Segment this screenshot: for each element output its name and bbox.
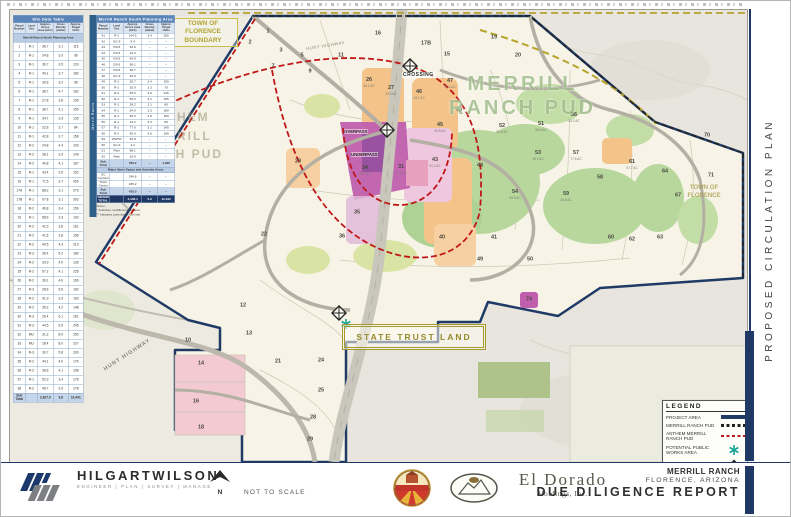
parcel-label: 58 bbox=[597, 175, 603, 181]
table-row: 11R-142.83.7158 bbox=[13, 132, 83, 141]
legend-item-merrill-pud: Merrill Ranch PUD bbox=[666, 423, 748, 429]
parcel-label: 20 bbox=[515, 53, 521, 59]
titleblock-accent-bar bbox=[745, 466, 754, 514]
parcel-label: 17B bbox=[421, 41, 431, 47]
table-sidebar-label: Merrill Ranch bbox=[91, 102, 95, 129]
parcel-label: 22 bbox=[261, 232, 267, 238]
report-title: DUE DILIGENCE REPORT bbox=[537, 485, 741, 499]
legend: LEGEND Project Area Merrill Ranch PUD An… bbox=[662, 400, 748, 463]
parcel-label: 48 bbox=[456, 108, 462, 114]
parcel-label: 6157.7 AC bbox=[626, 160, 637, 170]
title-block-bar: HILGARTWILSON ENGINEER | PLAN | SURVEY |… bbox=[1, 462, 791, 517]
firm-name: HILGARTWILSON bbox=[77, 469, 277, 482]
legend-item-public-works: Potential Public Works Area bbox=[666, 444, 748, 456]
table-row: 9R-134.73.9135 bbox=[13, 114, 83, 123]
table-row: 18R-246.83.4159 bbox=[13, 204, 83, 213]
table-row: 16R-171.53.7265 bbox=[13, 177, 83, 186]
right-accent-bar bbox=[745, 331, 754, 461]
parcel-label: 7 bbox=[271, 64, 274, 70]
table-row: 28R-241.93.9163 bbox=[13, 294, 83, 303]
table-row: 20R-242.33.8161 bbox=[13, 222, 83, 231]
parcel-label: 70 bbox=[704, 133, 710, 139]
parcel-label: 5777.6 AC bbox=[570, 151, 581, 161]
parcel-label: 5454.9 AC bbox=[509, 190, 520, 200]
right-rail: PROPOSED CIRCULATION PLAN bbox=[756, 1, 791, 461]
project-area-swatch bbox=[721, 415, 747, 419]
column-header: Parcel Number bbox=[13, 23, 25, 33]
parcel-label: 2728.6 AC bbox=[385, 86, 396, 96]
parcel-label: 44 bbox=[477, 163, 483, 169]
anthem-pud-swatch bbox=[721, 435, 747, 438]
table-row: Sub Total435.0---- bbox=[97, 188, 175, 196]
parcel-label: 3144.5 AC bbox=[395, 165, 406, 175]
parcel-label: 5250.6 AC bbox=[496, 124, 507, 134]
table-sidebar: Merrill Ranch bbox=[90, 15, 97, 217]
legend-item-project-area: Project Area bbox=[666, 415, 748, 421]
parcel-label: 5328.2 AC bbox=[532, 151, 543, 161]
north-arrow-icon bbox=[207, 469, 233, 483]
column-header: Land Use bbox=[25, 23, 37, 33]
firm-tagline: ENGINEER | PLAN | SURVEY | MANAGE bbox=[77, 484, 277, 489]
table-row: 7R-127.83.8106 bbox=[13, 96, 83, 105]
asterisk-icon bbox=[728, 444, 740, 456]
parcel-label: 71 bbox=[708, 173, 714, 179]
parcel-label: 14 bbox=[198, 361, 204, 367]
parcel-label: 36 bbox=[339, 234, 345, 240]
column-header: Approx. Gross Area (AC±) bbox=[37, 23, 53, 33]
parcel-label: 63 bbox=[657, 235, 663, 241]
table-notes: Notes:* Indicates modified parcel area**… bbox=[97, 205, 175, 218]
table-title: Merrill Ranch South Planning Area bbox=[97, 15, 175, 23]
parcel-label: 15 bbox=[444, 52, 450, 58]
column-header: Approx. Target Units bbox=[68, 23, 83, 33]
parcel-label: 2 bbox=[248, 40, 251, 46]
plan-sheet: 12357911151617B19202636.1 AC2728.6 AC464… bbox=[0, 0, 791, 517]
table-title: Site Data Table bbox=[13, 15, 83, 23]
table-row: 31R-344.55.5245 bbox=[13, 321, 83, 330]
parcel-label: 3 bbox=[279, 48, 282, 54]
table-row: 36R-238.64.1158 bbox=[13, 366, 83, 375]
table-row: 1R-136.73.1115 bbox=[13, 42, 83, 51]
table-row: 32MU31.28.0250 bbox=[13, 330, 83, 339]
parcel-label: 4757.6 AC bbox=[444, 79, 455, 89]
parcel-label: 74 bbox=[526, 297, 532, 303]
firm-block: HILGARTWILSON ENGINEER | PLAN | SURVEY |… bbox=[77, 469, 277, 491]
parcel-label: 16 bbox=[375, 31, 381, 37]
table-row: 33MU28.48.0227 bbox=[13, 339, 83, 348]
table-row: 29R-235.24.2148 bbox=[13, 303, 83, 312]
hilgartwilson-logo bbox=[15, 471, 71, 505]
table-row: 10R-122.83.784 bbox=[13, 123, 83, 132]
town-of-florence-seal bbox=[393, 469, 431, 507]
table-row: 23R-336.45.2189 bbox=[13, 249, 83, 258]
parcel-label: 13 bbox=[246, 331, 252, 337]
right-accent-line bbox=[749, 9, 751, 331]
table-row: 26R-236.14.6166 bbox=[13, 276, 83, 285]
parcel-label: 28 bbox=[310, 415, 316, 421]
parcel-label: 11 bbox=[338, 53, 344, 59]
parcel-label: 5940.8 AC bbox=[560, 192, 571, 202]
parcel-label: 18 bbox=[198, 425, 204, 431]
table-row: Town Center185.2---- bbox=[97, 180, 175, 188]
parcel-label: 5155.6 AC bbox=[535, 122, 546, 132]
project-name: MERRILL RANCH bbox=[537, 467, 741, 476]
parcel-label: 35 bbox=[354, 210, 360, 216]
parcel-label: 67 bbox=[675, 193, 681, 199]
table-column-headers: Parcel NumberLand UseApprox. Gross Area … bbox=[13, 23, 83, 33]
table-row: 38R-245.73.9178 bbox=[13, 384, 83, 393]
table-row: 17BR-197.83.1303 bbox=[13, 195, 83, 204]
column-header: Gross Density (du/ac) bbox=[142, 23, 158, 33]
table-row: 22R-249.54.3213 bbox=[13, 240, 83, 249]
site-data-tables: Site Data Table Parcel NumberLand UseApp… bbox=[13, 15, 189, 402]
parcel-label: 49 bbox=[477, 257, 483, 263]
parcel-label: 3439.7 AC bbox=[359, 166, 370, 176]
eldorado-logo bbox=[449, 472, 499, 504]
site-data-table-south: Merrill Ranch South Planning Area Parcel… bbox=[97, 15, 175, 203]
table-section: Merrill Ranch North Planning Area bbox=[13, 33, 83, 42]
table-row: 37R-152.33.4178 bbox=[13, 375, 83, 384]
table-row: 25R-257.24.1235 bbox=[13, 267, 83, 276]
merrill-pud-swatch bbox=[721, 424, 747, 427]
table-row: 34R-339.75.8230 bbox=[13, 348, 83, 357]
table-row: 14R-240.84.1167 bbox=[13, 159, 83, 168]
parcel-label: 23 bbox=[295, 159, 301, 165]
parcel-label: 25 bbox=[318, 388, 324, 394]
site-data-table-north: Site Data Table Parcel NumberLand UseApp… bbox=[13, 15, 84, 402]
table-row: 35R-244.14.0176 bbox=[13, 357, 83, 366]
parcel-label: 4351.2 AC bbox=[429, 158, 440, 168]
table-row: 19R-158.63.3193 bbox=[13, 213, 83, 222]
table-row: 3R-136.73.5129 bbox=[13, 60, 83, 69]
project-location: FLORENCE, ARIZONA bbox=[537, 477, 741, 484]
parcel-label: 29 bbox=[307, 437, 313, 443]
parcel-label: 62 bbox=[629, 237, 635, 243]
parcel-label: 1 bbox=[266, 29, 269, 35]
table-row: 27R-328.65.6160 bbox=[13, 285, 83, 294]
note-line: ** Indicates potential school site bbox=[97, 213, 175, 217]
table-row: 21R-241.63.8158 bbox=[13, 231, 83, 240]
column-header: Approx. Target Units bbox=[158, 23, 175, 33]
parcel-label: 12 bbox=[240, 303, 246, 309]
parcel-label: 9 bbox=[308, 69, 311, 75]
circulation-plan-map: 12357911151617B19202636.1 AC2728.6 AC464… bbox=[9, 9, 748, 463]
table-row: 4R-149.13.7180 bbox=[13, 69, 83, 78]
column-header: Parcel Number bbox=[97, 23, 110, 33]
column-header: Approx. Gross Area (AC±) bbox=[124, 23, 142, 33]
sheet-titleblock: MERRILL RANCH FLORENCE, ARIZONA DUE DILI… bbox=[537, 467, 741, 499]
parcel-label: 41 bbox=[491, 235, 497, 241]
parcel-label: 16 bbox=[193, 399, 199, 405]
table-row: 2R-124.83.996 bbox=[13, 51, 83, 60]
parcel-label: 60 bbox=[608, 235, 614, 241]
parcel-label: 40 bbox=[439, 235, 445, 241]
table-row: 13R-238.13.9149 bbox=[13, 150, 83, 159]
table-row: GRAND TOTAL4,148.15.212,341 bbox=[97, 195, 175, 203]
table-row: 30R-326.46.1161 bbox=[13, 312, 83, 321]
table-row: 6R-138.74.7182 bbox=[13, 87, 83, 96]
table-row: 12R-224.84.4109 bbox=[13, 141, 83, 150]
table-row: Sub Total2,927.93.610,441 bbox=[13, 393, 83, 402]
north-arrow: N bbox=[205, 469, 235, 496]
column-header: Gross Density (du/ac) bbox=[53, 23, 68, 33]
table-column-headers: Parcel NumberLand UseApprox. Gross Area … bbox=[97, 23, 175, 33]
table-row: 5R-130.63.298 bbox=[13, 78, 83, 87]
parcel-label: 4559.8 AC bbox=[434, 123, 445, 133]
parcel-label: 50 bbox=[527, 257, 533, 263]
column-header: Land Use bbox=[110, 23, 124, 33]
parcel-label: 21 bbox=[275, 359, 281, 365]
table-row: 17AR-188.23.1273 bbox=[13, 186, 83, 195]
table-row: 15R-143.43.5152 bbox=[13, 168, 83, 177]
scale-note: NOT TO SCALE bbox=[244, 489, 306, 496]
parcel-label: 24 bbox=[318, 358, 324, 364]
sheet-header-microtext bbox=[7, 3, 742, 6]
parcel-label: 64 bbox=[662, 169, 668, 175]
site-data-table-south-wrap: Merrill Ranch Merrill Ranch South Planni… bbox=[90, 15, 175, 217]
parcel-label: 5 bbox=[300, 53, 303, 59]
north-letter: N bbox=[205, 489, 235, 496]
parcel-label: 19 bbox=[491, 35, 497, 41]
table-row: 24R-233.94.0136 bbox=[13, 258, 83, 267]
table-row: 8R-138.74.1159 bbox=[13, 105, 83, 114]
legend-item-anthem-pud: Anthem Merrill Ranch PUD bbox=[666, 431, 748, 442]
table-row: Sub Total785.2--1,900 bbox=[97, 160, 175, 168]
table-row: GC Corridor249.8---- bbox=[97, 173, 175, 181]
parcel-label: 4643.1 AC bbox=[413, 90, 424, 100]
parcel-label: 5624.2 AC bbox=[568, 113, 579, 123]
sheet-title-vertical: PROPOSED CIRCULATION PLAN bbox=[764, 105, 775, 375]
legend-title: LEGEND bbox=[666, 403, 748, 412]
parcel-label: 2636.1 AC bbox=[363, 78, 374, 88]
